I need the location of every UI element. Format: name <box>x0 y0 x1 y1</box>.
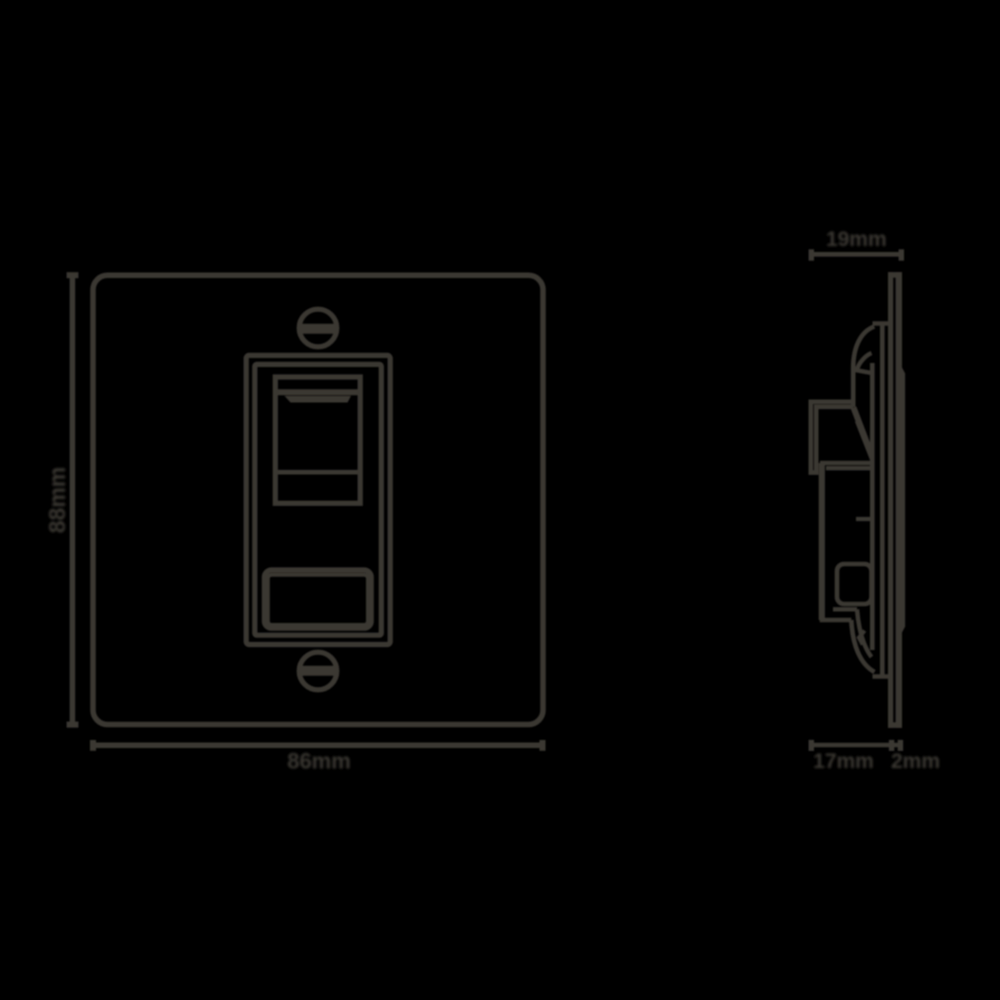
svg-text:86mm: 86mm <box>287 749 351 774</box>
svg-text:2mm: 2mm <box>891 750 940 773</box>
svg-text:17mm: 17mm <box>813 750 874 773</box>
svg-text:88mm: 88mm <box>44 467 70 533</box>
svg-text:19mm: 19mm <box>826 228 887 251</box>
